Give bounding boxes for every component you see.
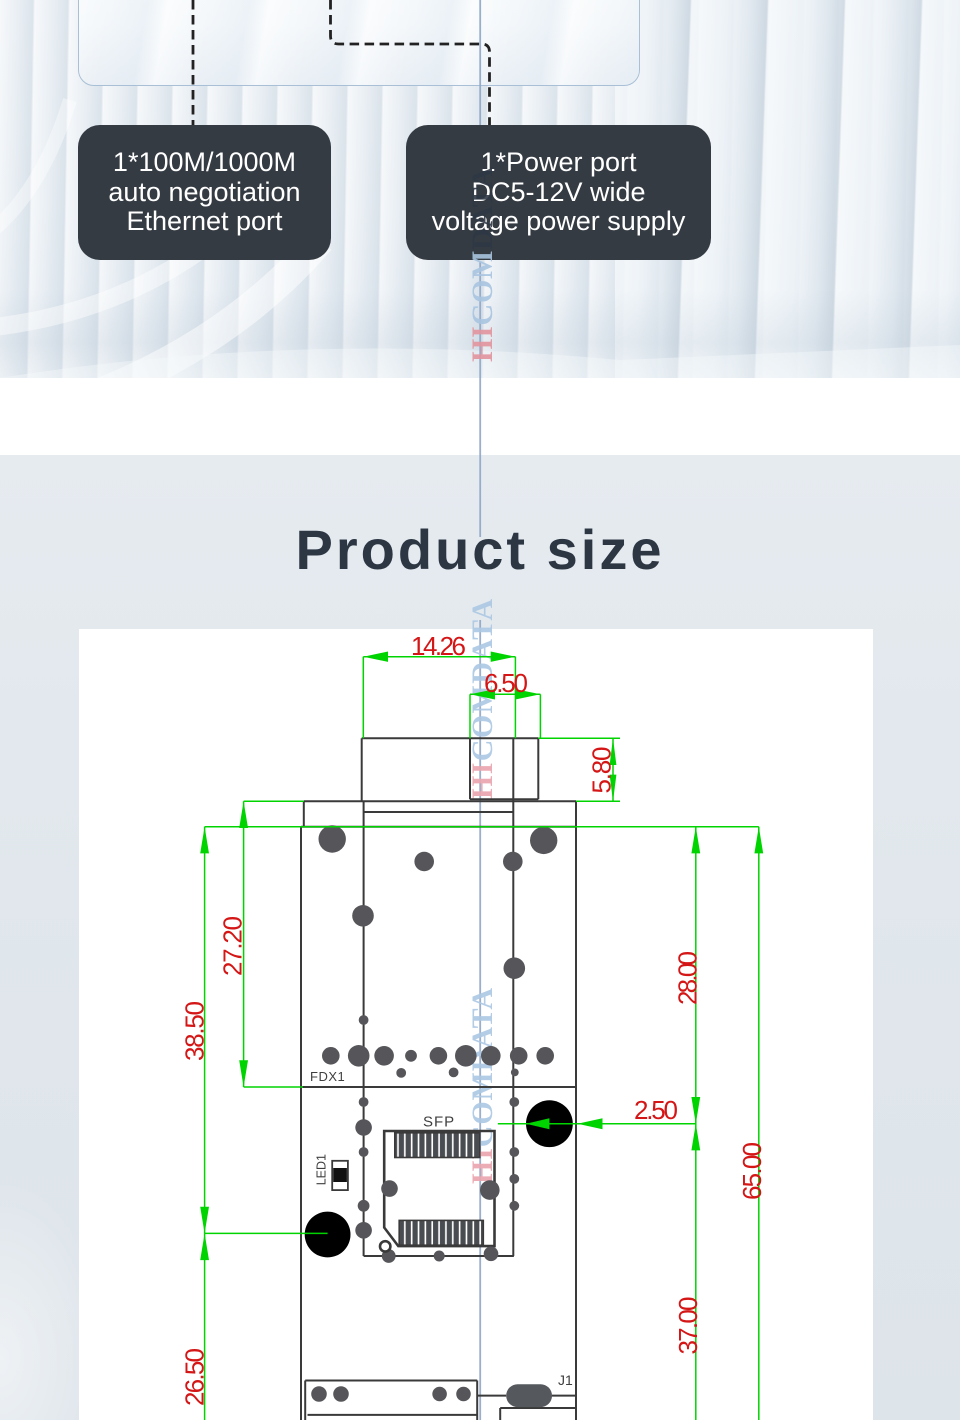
svg-text:26.50: 26.50 (180, 1348, 210, 1406)
svg-text:6.50: 6.50 (484, 668, 528, 698)
svg-text:14.26: 14.26 (411, 631, 466, 661)
svg-text:HICOMDATA: HICOMDATA (466, 167, 499, 362)
svg-text:38.50: 38.50 (180, 1001, 210, 1061)
svg-text:FDX1: FDX1 (310, 1069, 345, 1084)
svg-text:LED1: LED1 (315, 1154, 329, 1185)
svg-text:37.00: 37.00 (673, 1297, 703, 1355)
svg-text:27.20: 27.20 (218, 916, 248, 976)
svg-text:28.00: 28.00 (673, 951, 703, 1005)
svg-text:SFP: SFP (423, 1114, 455, 1131)
svg-text:5.80: 5.80 (587, 747, 617, 794)
svg-text:65.00: 65.00 (737, 1142, 767, 1200)
svg-text:J1: J1 (558, 1372, 573, 1388)
svg-text:2.50: 2.50 (634, 1095, 678, 1125)
